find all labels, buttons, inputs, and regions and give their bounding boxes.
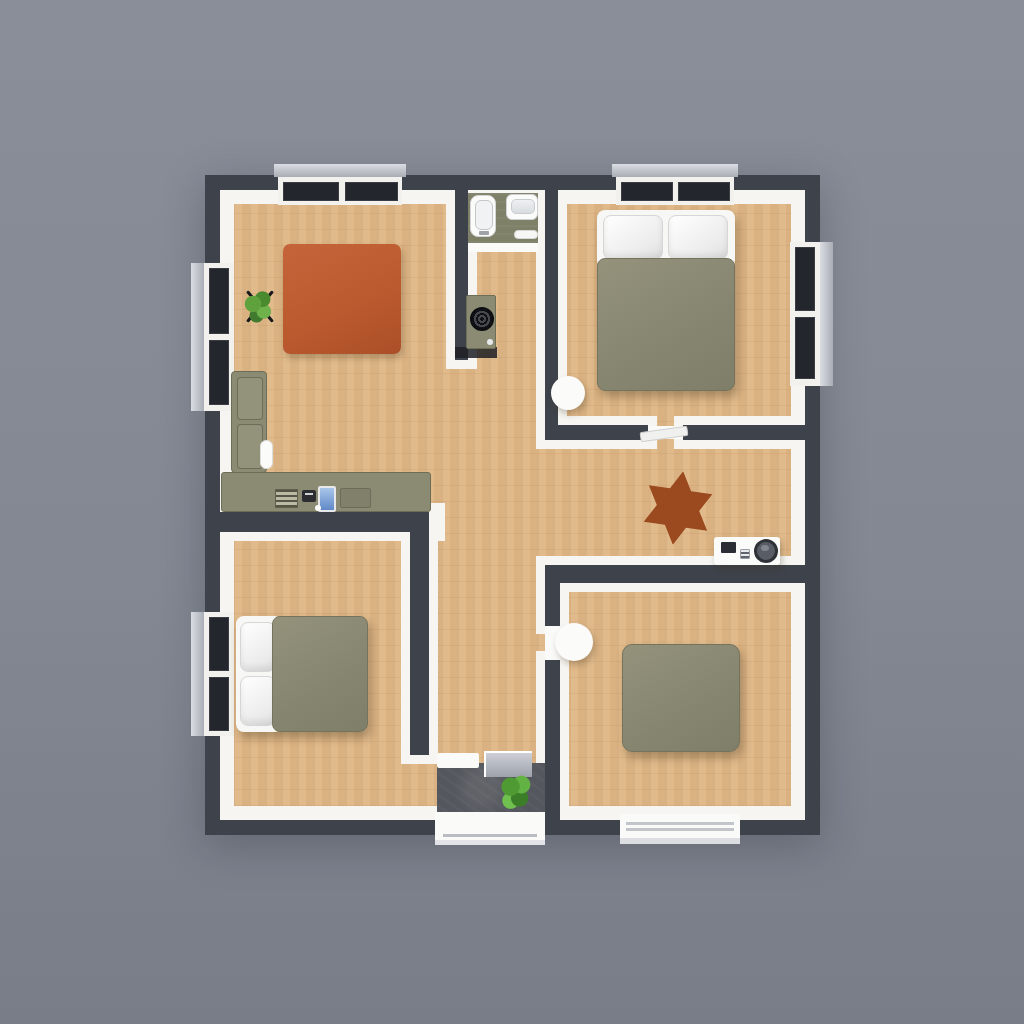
window-sill <box>612 164 738 177</box>
floor-plan-canvas <box>0 0 1024 1024</box>
window-top-living-room <box>274 164 406 208</box>
stove-unit <box>466 295 496 349</box>
window-sill-line <box>626 822 734 825</box>
toilet <box>506 194 538 220</box>
front-door-threshold <box>435 812 545 845</box>
washer-detergent-drawer <box>721 542 736 553</box>
bath-mat <box>514 230 538 239</box>
bed-bedroomBL <box>236 616 368 732</box>
wall-bedroomBL-top <box>220 512 427 532</box>
living-room-rug <box>283 244 401 354</box>
window-glass-pane <box>283 182 339 201</box>
bed-blanket <box>272 616 368 732</box>
sofa-cushion <box>237 377 263 420</box>
laptop <box>302 490 316 502</box>
stove-burner <box>470 307 494 331</box>
washing-machine <box>714 537 780 565</box>
desk-vent-panel <box>275 489 298 508</box>
window-glass-pane <box>621 182 673 201</box>
window-glass-pane <box>795 317 815 379</box>
desk-console <box>221 472 431 512</box>
bathtub <box>470 195 496 237</box>
potted-plant-living-room <box>238 283 282 335</box>
bed-pillow <box>240 676 276 726</box>
sofa-white-pillow <box>260 440 273 469</box>
wall-roomBR-top <box>558 565 805 583</box>
wall-bedroomBL-right <box>410 512 429 755</box>
wall-bedroomTR-bottom-left-seg <box>558 425 648 440</box>
bathroom-threshold <box>467 243 538 252</box>
desk-mouse <box>315 505 321 511</box>
ottoman-daybed-roomBR <box>622 644 740 752</box>
window-sill <box>274 164 406 177</box>
stove-knob <box>487 339 493 345</box>
washer-drum-highlight <box>761 545 769 551</box>
wall-roomBR-left-lower <box>545 660 560 820</box>
window-glass-pane <box>209 268 229 334</box>
side-table-bedroomTR <box>551 376 585 410</box>
window-glass-pane <box>209 340 229 405</box>
corridor-door-threshold <box>437 753 479 768</box>
side-table-roomBR <box>555 623 593 661</box>
bathtub-faucet <box>479 231 489 235</box>
toilet-lid <box>511 199 535 214</box>
window-sill <box>191 612 204 736</box>
window-sill <box>820 242 833 386</box>
desk-recessed-panel <box>340 488 371 508</box>
bed-bedroomTR <box>597 210 735 391</box>
window-glass-pane <box>345 182 398 201</box>
window-left-bedroomBL <box>191 608 237 740</box>
bed-pillow <box>603 215 663 260</box>
bed-pillow <box>240 622 276 672</box>
window-sill-line <box>626 828 734 831</box>
washer-drum-door <box>754 539 778 563</box>
bathtub-basin <box>475 200 493 230</box>
plant-leaves <box>244 291 274 325</box>
washer-control-panel <box>740 549 750 559</box>
window-right-bedroomTR <box>787 238 833 390</box>
window-glass-pane <box>209 677 229 731</box>
bed-pillow <box>668 215 728 260</box>
laptop-keys <box>305 493 313 495</box>
window-glass-pane <box>209 617 229 671</box>
window-sill <box>191 263 204 411</box>
window-bottom-roomBR <box>620 814 740 844</box>
wall-bedroomTR-bottom-right-seg <box>683 425 805 440</box>
floor-plan <box>0 0 1024 1024</box>
bed-blanket <box>597 258 735 391</box>
window-glass-pane <box>795 247 815 311</box>
front-door-step-edge <box>435 840 545 845</box>
front-door-line <box>443 834 537 837</box>
window-top-bedroomTR <box>612 164 738 208</box>
window-sill-edge <box>620 838 740 844</box>
potted-plant-entry <box>498 772 534 814</box>
window-glass-pane <box>678 182 730 201</box>
